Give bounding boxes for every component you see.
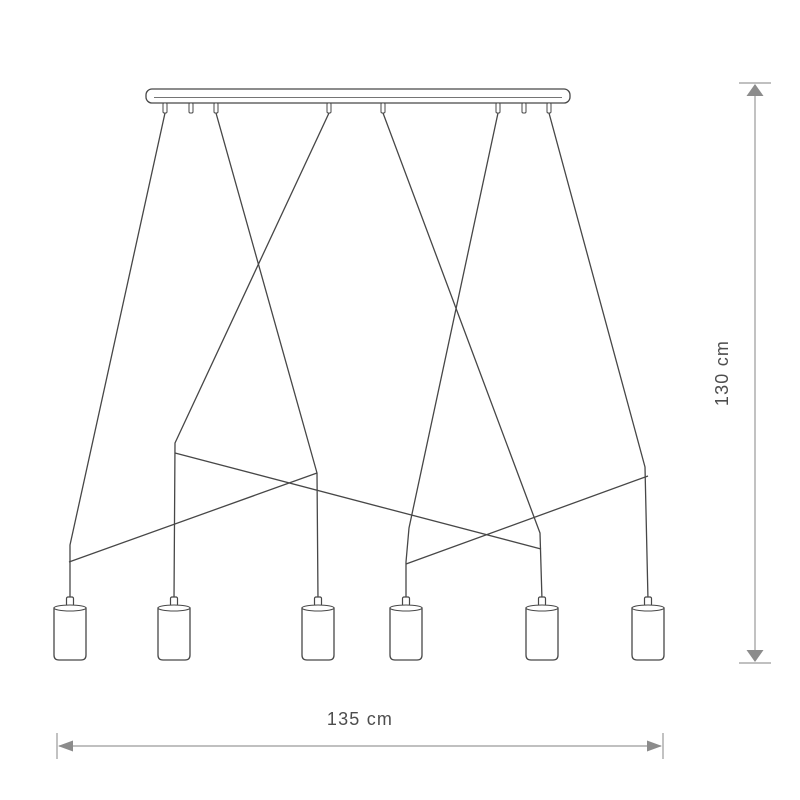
cord-5 [406, 113, 498, 600]
cord-3 [174, 113, 329, 600]
shade-body [632, 608, 664, 660]
lamp-shade [158, 597, 190, 660]
width-dimension: 135 cm [57, 709, 663, 759]
product-dimension-page: 135 cm 130 cm [0, 0, 800, 800]
lamp-shade [632, 597, 664, 660]
shade-top-rim [526, 605, 558, 611]
lamp-shade [302, 597, 334, 660]
shade-top-rim [302, 605, 334, 611]
lamp-shades [54, 597, 664, 660]
crossing-cords [69, 453, 648, 564]
cord-connector [496, 103, 500, 113]
cord-2 [216, 113, 318, 600]
cross-cord-2 [69, 473, 317, 562]
cord-6 [549, 113, 648, 600]
cord-connector [522, 103, 526, 113]
cord-connector [163, 103, 167, 113]
shade-top-rim [158, 605, 190, 611]
cord-connector [381, 103, 385, 113]
lamp-shade [390, 597, 422, 660]
height-dimension-label: 130 cm [712, 340, 732, 406]
canopy-bar [146, 89, 570, 103]
cord-connector [547, 103, 551, 113]
lamp-shade [54, 597, 86, 660]
width-right-arrowhead [647, 741, 662, 752]
cord-connector [214, 103, 218, 113]
cord-connectors [163, 103, 551, 113]
cord-1 [70, 113, 165, 600]
shade-body [158, 608, 190, 660]
shade-body [390, 608, 422, 660]
shade-top-rim [390, 605, 422, 611]
suspension-cords [70, 113, 648, 600]
lamp-shade [526, 597, 558, 660]
shade-body [302, 608, 334, 660]
height-dimension: 130 cm [712, 83, 771, 663]
shade-top-rim [632, 605, 664, 611]
shade-body [54, 608, 86, 660]
shade-top-rim [54, 605, 86, 611]
height-top-arrowhead [747, 84, 764, 96]
height-bottom-arrowhead [747, 650, 764, 662]
width-left-arrowhead [58, 741, 73, 752]
ceiling-canopy [146, 89, 570, 103]
cord-4 [383, 113, 542, 600]
cord-connector [189, 103, 193, 113]
pendant-lamp-diagram: 135 cm 130 cm [0, 0, 800, 800]
width-dimension-label: 135 cm [327, 709, 393, 729]
cord-connector [327, 103, 331, 113]
shade-body [526, 608, 558, 660]
cross-cord-3 [406, 476, 648, 564]
